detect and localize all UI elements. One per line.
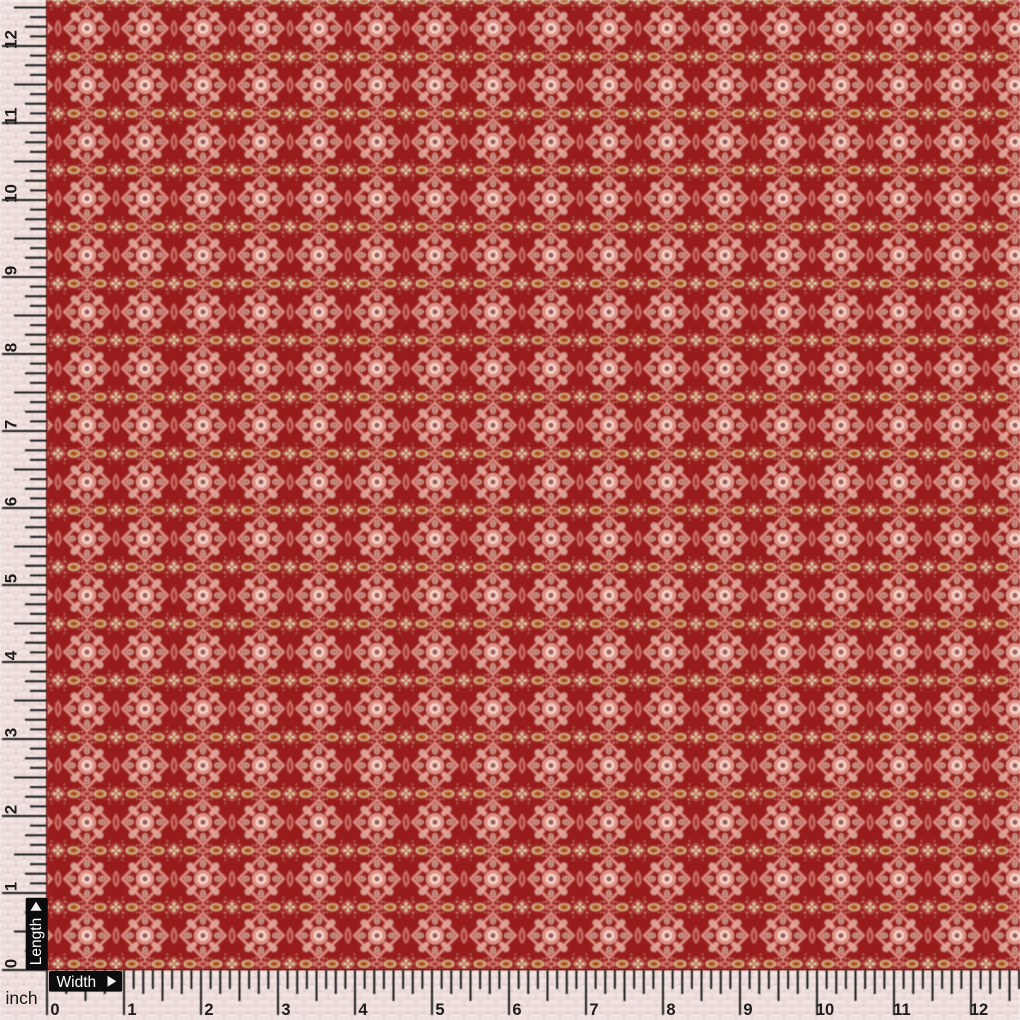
- svg-text:1: 1: [127, 1001, 136, 1019]
- svg-text:5: 5: [2, 574, 21, 583]
- svg-text:8: 8: [666, 1001, 675, 1019]
- svg-text:12: 12: [970, 1001, 988, 1019]
- svg-text:2: 2: [204, 1001, 213, 1019]
- svg-text:5: 5: [435, 1001, 444, 1019]
- svg-text:10: 10: [2, 184, 21, 203]
- svg-text:11: 11: [893, 1001, 910, 1019]
- svg-text:3: 3: [2, 728, 21, 737]
- svg-text:4: 4: [2, 650, 21, 660]
- svg-text:7: 7: [589, 1001, 598, 1019]
- svg-text:3: 3: [281, 1001, 290, 1019]
- svg-text:10: 10: [816, 1001, 834, 1019]
- svg-text:Length: Length: [28, 918, 45, 965]
- svg-text:inch: inch: [6, 988, 38, 1008]
- svg-text:6: 6: [2, 497, 21, 506]
- svg-text:2: 2: [2, 805, 21, 814]
- svg-text:9: 9: [743, 1001, 752, 1019]
- svg-text:4: 4: [358, 1001, 368, 1019]
- svg-text:6: 6: [512, 1001, 521, 1019]
- svg-text:Width: Width: [57, 974, 97, 991]
- svg-text:7: 7: [2, 420, 21, 429]
- svg-text:1: 1: [2, 882, 21, 891]
- svg-text:8: 8: [2, 343, 21, 352]
- svg-text:0: 0: [50, 1001, 59, 1019]
- svg-text:11: 11: [2, 108, 21, 126]
- svg-text:12: 12: [2, 30, 21, 49]
- svg-text:0: 0: [2, 959, 21, 968]
- svg-text:9: 9: [2, 266, 21, 275]
